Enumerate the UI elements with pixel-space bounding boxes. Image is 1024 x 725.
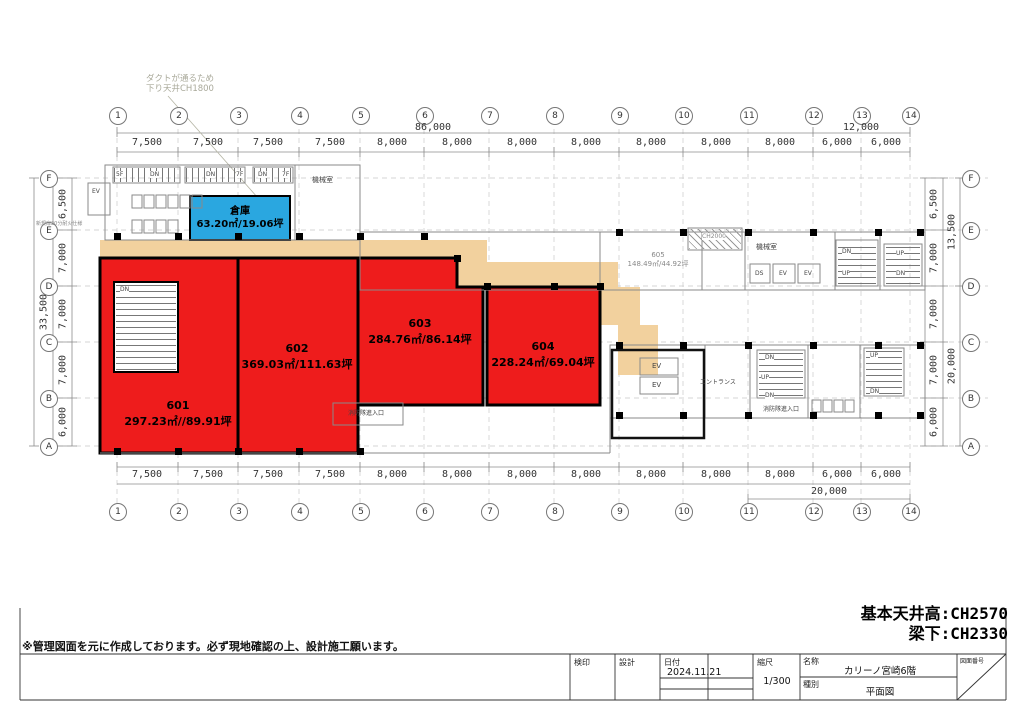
dim-bottom: 7,500 [315,469,345,480]
titleblock-name-label: 名称 [803,656,819,667]
up-label: UP [842,270,850,277]
duct-annotation-line2: 下り天井CH1800 [146,84,214,94]
grid-col-bubble: 2 [170,503,188,521]
dim-top: 7,500 [193,137,223,148]
dim-left: 7,000 [58,299,69,329]
dim-top: 8,000 [442,137,472,148]
grid-col-label: 1 [115,507,121,517]
grid-row-label: E [968,226,974,236]
grid-row-bubble: E [962,222,980,240]
grid-col-label: 2 [176,507,182,517]
grid-col-label: 7 [487,507,493,517]
floor-5f-label: 5F [116,171,123,178]
dim-right: 7,000 [929,299,940,329]
dn-label: DN [765,392,774,399]
grid-row-bubble: B [962,390,980,408]
dim-right: 7,000 [929,355,940,385]
up-label: UP [870,352,878,359]
titleblock-scale-value: 1/300 [763,676,790,687]
dim-top: 6,000 [871,137,901,148]
stage-stair-hatch [116,284,176,370]
dim-top: 6,000 [822,137,852,148]
dim-bottom: 8,000 [442,469,472,480]
dn-label: DN [258,171,267,178]
grid-col-bubble: 9 [611,503,629,521]
grid-col-bubble: 4 [291,503,309,521]
grid-col-label: 7 [487,111,493,121]
grid-col-label: 12 [808,507,819,517]
ev-label: EV [779,270,787,277]
grid-col-bubble: 9 [611,107,629,125]
grid-row-label: C [46,338,52,348]
grid-col-label: 2 [176,111,182,121]
ceiling-height-line: 基本天井高:CH2570 [861,604,1008,624]
fire-entry-label: 消防隊進入口 [763,406,799,413]
dim-top: 8,000 [571,137,601,148]
dn-label: DN [120,286,129,293]
beam-height-line: 梁下:CH2330 [861,624,1008,644]
grid-col-label: 13 [856,111,867,121]
grid-col-bubble: 13 [853,503,871,521]
grid-col-bubble: 1 [109,107,127,125]
room-604-area: 228.24㎡/69.04坪 [491,354,594,370]
dim-bottom: 7,500 [253,469,283,480]
dn-label: DN [150,171,159,178]
grid-col-bubble: 8 [546,107,564,125]
grid-row-label: A [968,442,974,452]
dim-bottom: 8,000 [636,469,666,480]
dn-label: DN [206,171,215,178]
grid-col-label: 3 [236,507,242,517]
grid-row-label: A [46,442,52,452]
titleblock-date-value: 2024.11.21 [667,667,721,678]
grid-col-label: 8 [552,507,558,517]
dn-label: DN [896,270,905,277]
dim-bottom: 7,500 [193,469,223,480]
grid-col-label: 10 [678,507,689,517]
dim-left: 7,000 [58,243,69,273]
grid-col-label: 13 [856,507,867,517]
grid-col-label: 3 [236,111,242,121]
ceiling-height-note: 基本天井高:CH2570 梁下:CH2330 [861,604,1008,644]
dim-top: 8,000 [507,137,537,148]
room-603-area: 284.76㎡/86.14坪 [368,331,471,347]
grid-col-label: 6 [422,111,428,121]
grid-col-bubble: 12 [805,503,823,521]
grid-col-label: 1 [115,111,121,121]
titleblock-design-label: 設計 [619,657,635,668]
grid-col-label: 14 [905,111,916,121]
grid-col-label: 6 [422,507,428,517]
titleblock-type-label: 種別 [803,679,819,690]
dim-bottom: 8,000 [765,469,795,480]
machine-room-label: 機械室 [312,176,333,184]
floor-plan-sheet: ダクトが通るため 下り天井CH1800 1 2 3 4 5 6 7 8 9 10… [0,0,1024,725]
dim-right-lower-total: 20,000 [947,348,958,384]
grid-col-bubble: 5 [352,107,370,125]
storage-area: 63.20㎡/19.06坪 [197,215,284,230]
grid-col-label: 14 [905,507,916,517]
floor-7f-label: 7F [282,171,289,178]
grid-col-bubble: 11 [740,503,758,521]
dim-left: 6,000 [58,407,69,437]
grid-row-label: B [46,394,52,404]
dn-label: DN [842,248,851,255]
ev-label: EV [652,381,661,389]
grid-col-bubble: 12 [805,107,823,125]
dim-bottom: 6,000 [822,469,852,480]
grid-col-bubble: 7 [481,107,499,125]
titleblock-scale-label: 縮尺 [757,657,773,668]
grid-col-label: 5 [358,111,364,121]
dn-label: DN [765,354,774,361]
titleblock-check-label: 検印 [574,657,590,668]
dim-top: 7,500 [253,137,283,148]
dim-bottom-right-total: 20,000 [811,486,847,497]
dim-bottom: 8,000 [701,469,731,480]
entrance-label: エントランス [700,379,736,386]
dim-top: 7,500 [315,137,345,148]
grid-row-bubble: D [962,278,980,296]
disclaimer-note: ※管理図面を元に作成しております。必ず現地確認の上、設計施工願います。 [22,638,404,654]
dim-bottom: 8,000 [571,469,601,480]
dim-right: 7,000 [929,243,940,273]
dn-label: DN [870,388,879,395]
dim-bottom: 8,000 [507,469,537,480]
grid-col-bubble: 8 [546,503,564,521]
grid-row-bubble: C [40,334,58,352]
dim-bottom: 7,500 [132,469,162,480]
grid-row-label: C [968,338,974,348]
ev-label: EV [652,362,661,370]
dim-top: 8,000 [765,137,795,148]
grid-row-label: D [968,282,975,292]
ev-label: EV [92,188,100,195]
grid-col-bubble: 14 [902,107,920,125]
grid-col-label: 4 [297,507,303,517]
grid-col-label: 12 [808,111,819,121]
grid-col-label: 8 [552,111,558,121]
dim-left: 6,500 [58,189,69,219]
room-602-area: 369.03㎡/111.63坪 [242,356,353,372]
dim-left-total: 33,500 [39,294,50,330]
grid-col-bubble: 11 [740,107,758,125]
dim-top: 7,500 [132,137,162,148]
grid-col-label: 11 [743,507,754,517]
grid-row-bubble: A [40,438,58,456]
grid-row-bubble: A [962,438,980,456]
room-602-number: 602 [286,342,309,355]
dim-bottom: 6,000 [871,469,901,480]
grid-row-label: F [968,174,973,184]
grid-col-bubble: 14 [902,503,920,521]
room-601-number: 601 [167,399,190,412]
dim-top-right-total: 12,000 [843,122,879,133]
grid-col-label: 9 [617,507,623,517]
stair-hatch [114,168,179,182]
duct-annotation-line1: ダクトが通るため [146,74,214,84]
ch2000-label: CH2000 [702,233,726,240]
grid-col-bubble: 6 [416,503,434,521]
room-603-number: 603 [409,317,432,330]
titleblock-dwgno-label: 図面番号 [960,656,984,665]
grid-col-bubble: 10 [675,503,693,521]
ds-label: DS [755,270,763,277]
grid-col-label: 4 [297,111,303,121]
dim-right: 6,500 [929,189,940,219]
dim-top-total: 86,000 [415,122,451,133]
titleblock-name-value: カリーノ宮崎6階 [844,663,916,677]
duct-annotation: ダクトが通るため 下り天井CH1800 [146,74,214,94]
dim-top: 8,000 [377,137,407,148]
grid-col-bubble: 3 [230,107,248,125]
dim-top: 8,000 [636,137,666,148]
grid-col-label: 9 [617,111,623,121]
titleblock-type-value: 平面図 [866,684,895,698]
dim-left: 7,000 [58,355,69,385]
dim-right-upper-total: 13,500 [947,214,958,250]
grid-col-label: 5 [358,507,364,517]
machine-room-label: 機械室 [756,243,777,251]
fire-entry-label: 消防隊進入口 [348,410,384,417]
door-note-label: 新規扉20分耐火仕様 [36,221,82,228]
room-605-area: 148.49㎡/44.92坪 [628,260,689,268]
grid-row-bubble: F [40,170,58,188]
grid-col-label: 11 [743,111,754,121]
grid-col-bubble: 10 [675,107,693,125]
grid-col-label: 10 [678,111,689,121]
grid-row-label: F [46,174,51,184]
dim-top: 8,000 [701,137,731,148]
ev-label: EV [804,270,812,277]
grid-col-bubble: 4 [291,107,309,125]
grid-col-bubble: 2 [170,107,188,125]
dim-right: 6,000 [929,407,940,437]
grid-row-bubble: C [962,334,980,352]
room-605-number: 605 [651,251,664,259]
grid-col-bubble: 5 [352,503,370,521]
grid-row-label: B [968,394,974,404]
dim-bottom: 8,000 [377,469,407,480]
up-label: UP [761,374,769,381]
grid-col-bubble: 7 [481,503,499,521]
room-601-area: 297.23㎡//89.91坪 [124,413,231,429]
grid-col-bubble: 3 [230,503,248,521]
grid-row-bubble: F [962,170,980,188]
grid-row-label: D [46,282,53,292]
room-604-number: 604 [532,340,555,353]
up-label: UP [896,250,904,257]
floor-7f-label: 7F [236,171,243,178]
grid-col-bubble: 1 [109,503,127,521]
grid-row-bubble: B [40,390,58,408]
